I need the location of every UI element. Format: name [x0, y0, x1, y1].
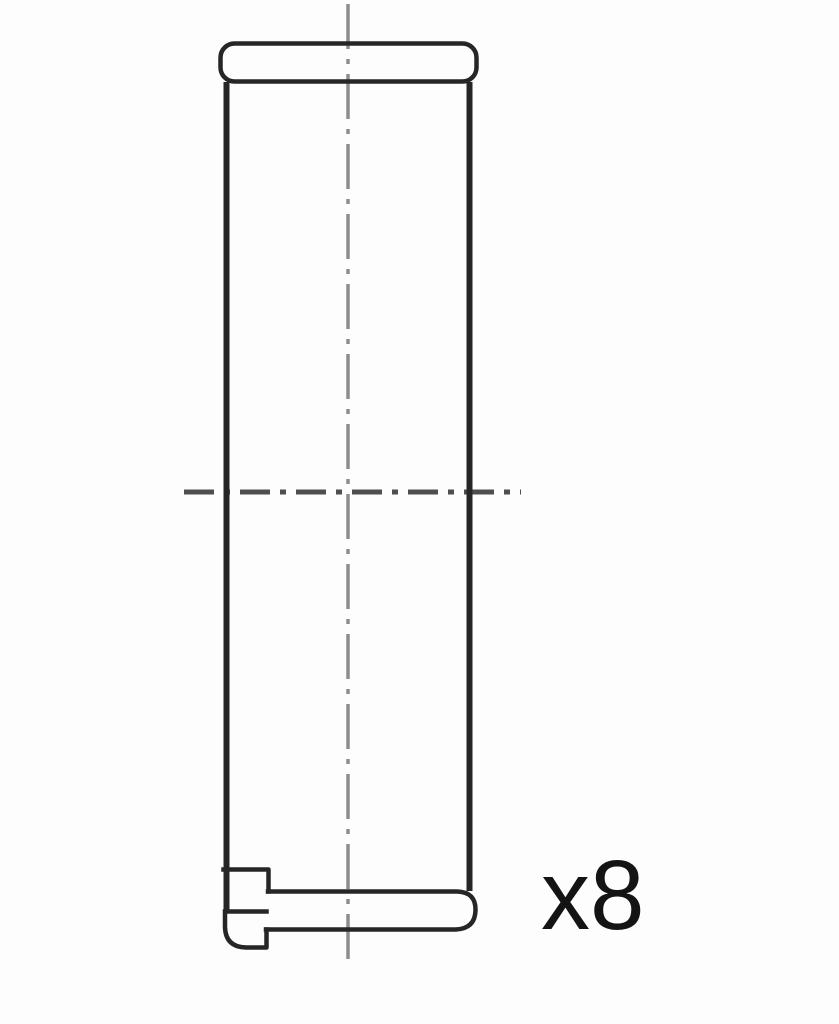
bottom-flange-outline	[266, 892, 476, 930]
locating-lug-outline	[224, 870, 269, 948]
quantity-label: x8	[541, 840, 645, 950]
product-drawing-page: x8	[0, 0, 839, 1024]
bearing-shell-technical-drawing: x8	[0, 0, 839, 1024]
